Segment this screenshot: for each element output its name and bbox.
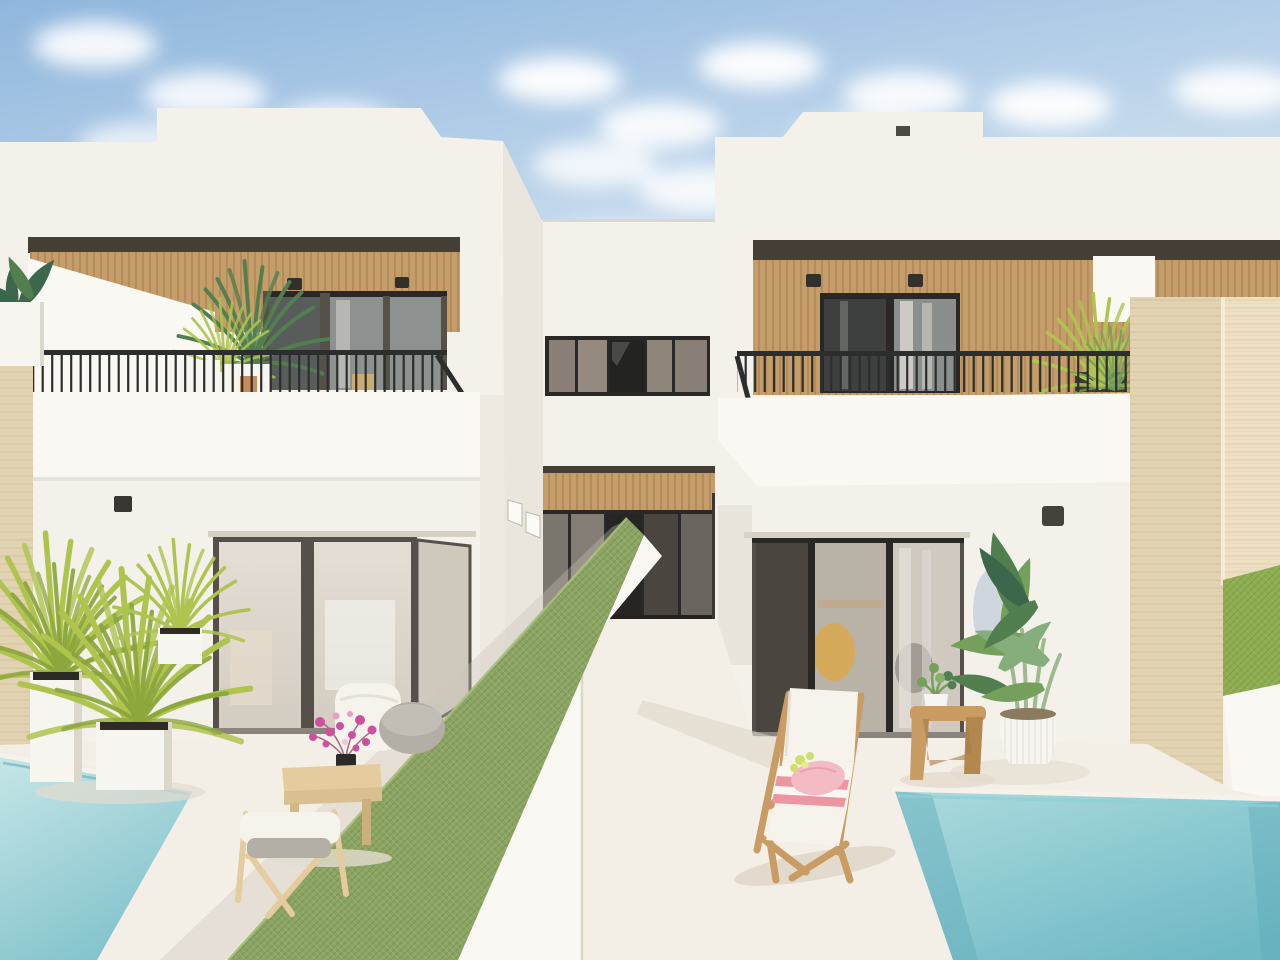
table-top (282, 764, 382, 791)
planter (96, 722, 172, 790)
left-balcony-parapet (28, 392, 480, 480)
right-pool (893, 789, 1280, 960)
left-boundary-pillar (0, 318, 33, 763)
villa-render (0, 0, 1280, 960)
right-soffit (753, 240, 1280, 260)
corner-planter (0, 302, 44, 366)
wood-cladding-middle (533, 466, 719, 512)
left-balcony-railing (30, 350, 465, 398)
wall-light-icon (908, 274, 923, 287)
left-soffit (28, 237, 460, 253)
ribbed-pot (1000, 708, 1056, 764)
wall-light-icon (395, 277, 409, 288)
wall-light-icon (114, 496, 132, 512)
wall-light-icon (806, 274, 821, 287)
lounger-backrest (783, 688, 858, 762)
roof-vent-icon (896, 126, 910, 136)
clerestory-windows (545, 336, 710, 396)
chair-seat-cushion (247, 838, 331, 858)
wall-light-icon (1042, 506, 1064, 526)
right-balcony-parapet (718, 393, 1153, 486)
right-hedge (1223, 565, 1280, 810)
